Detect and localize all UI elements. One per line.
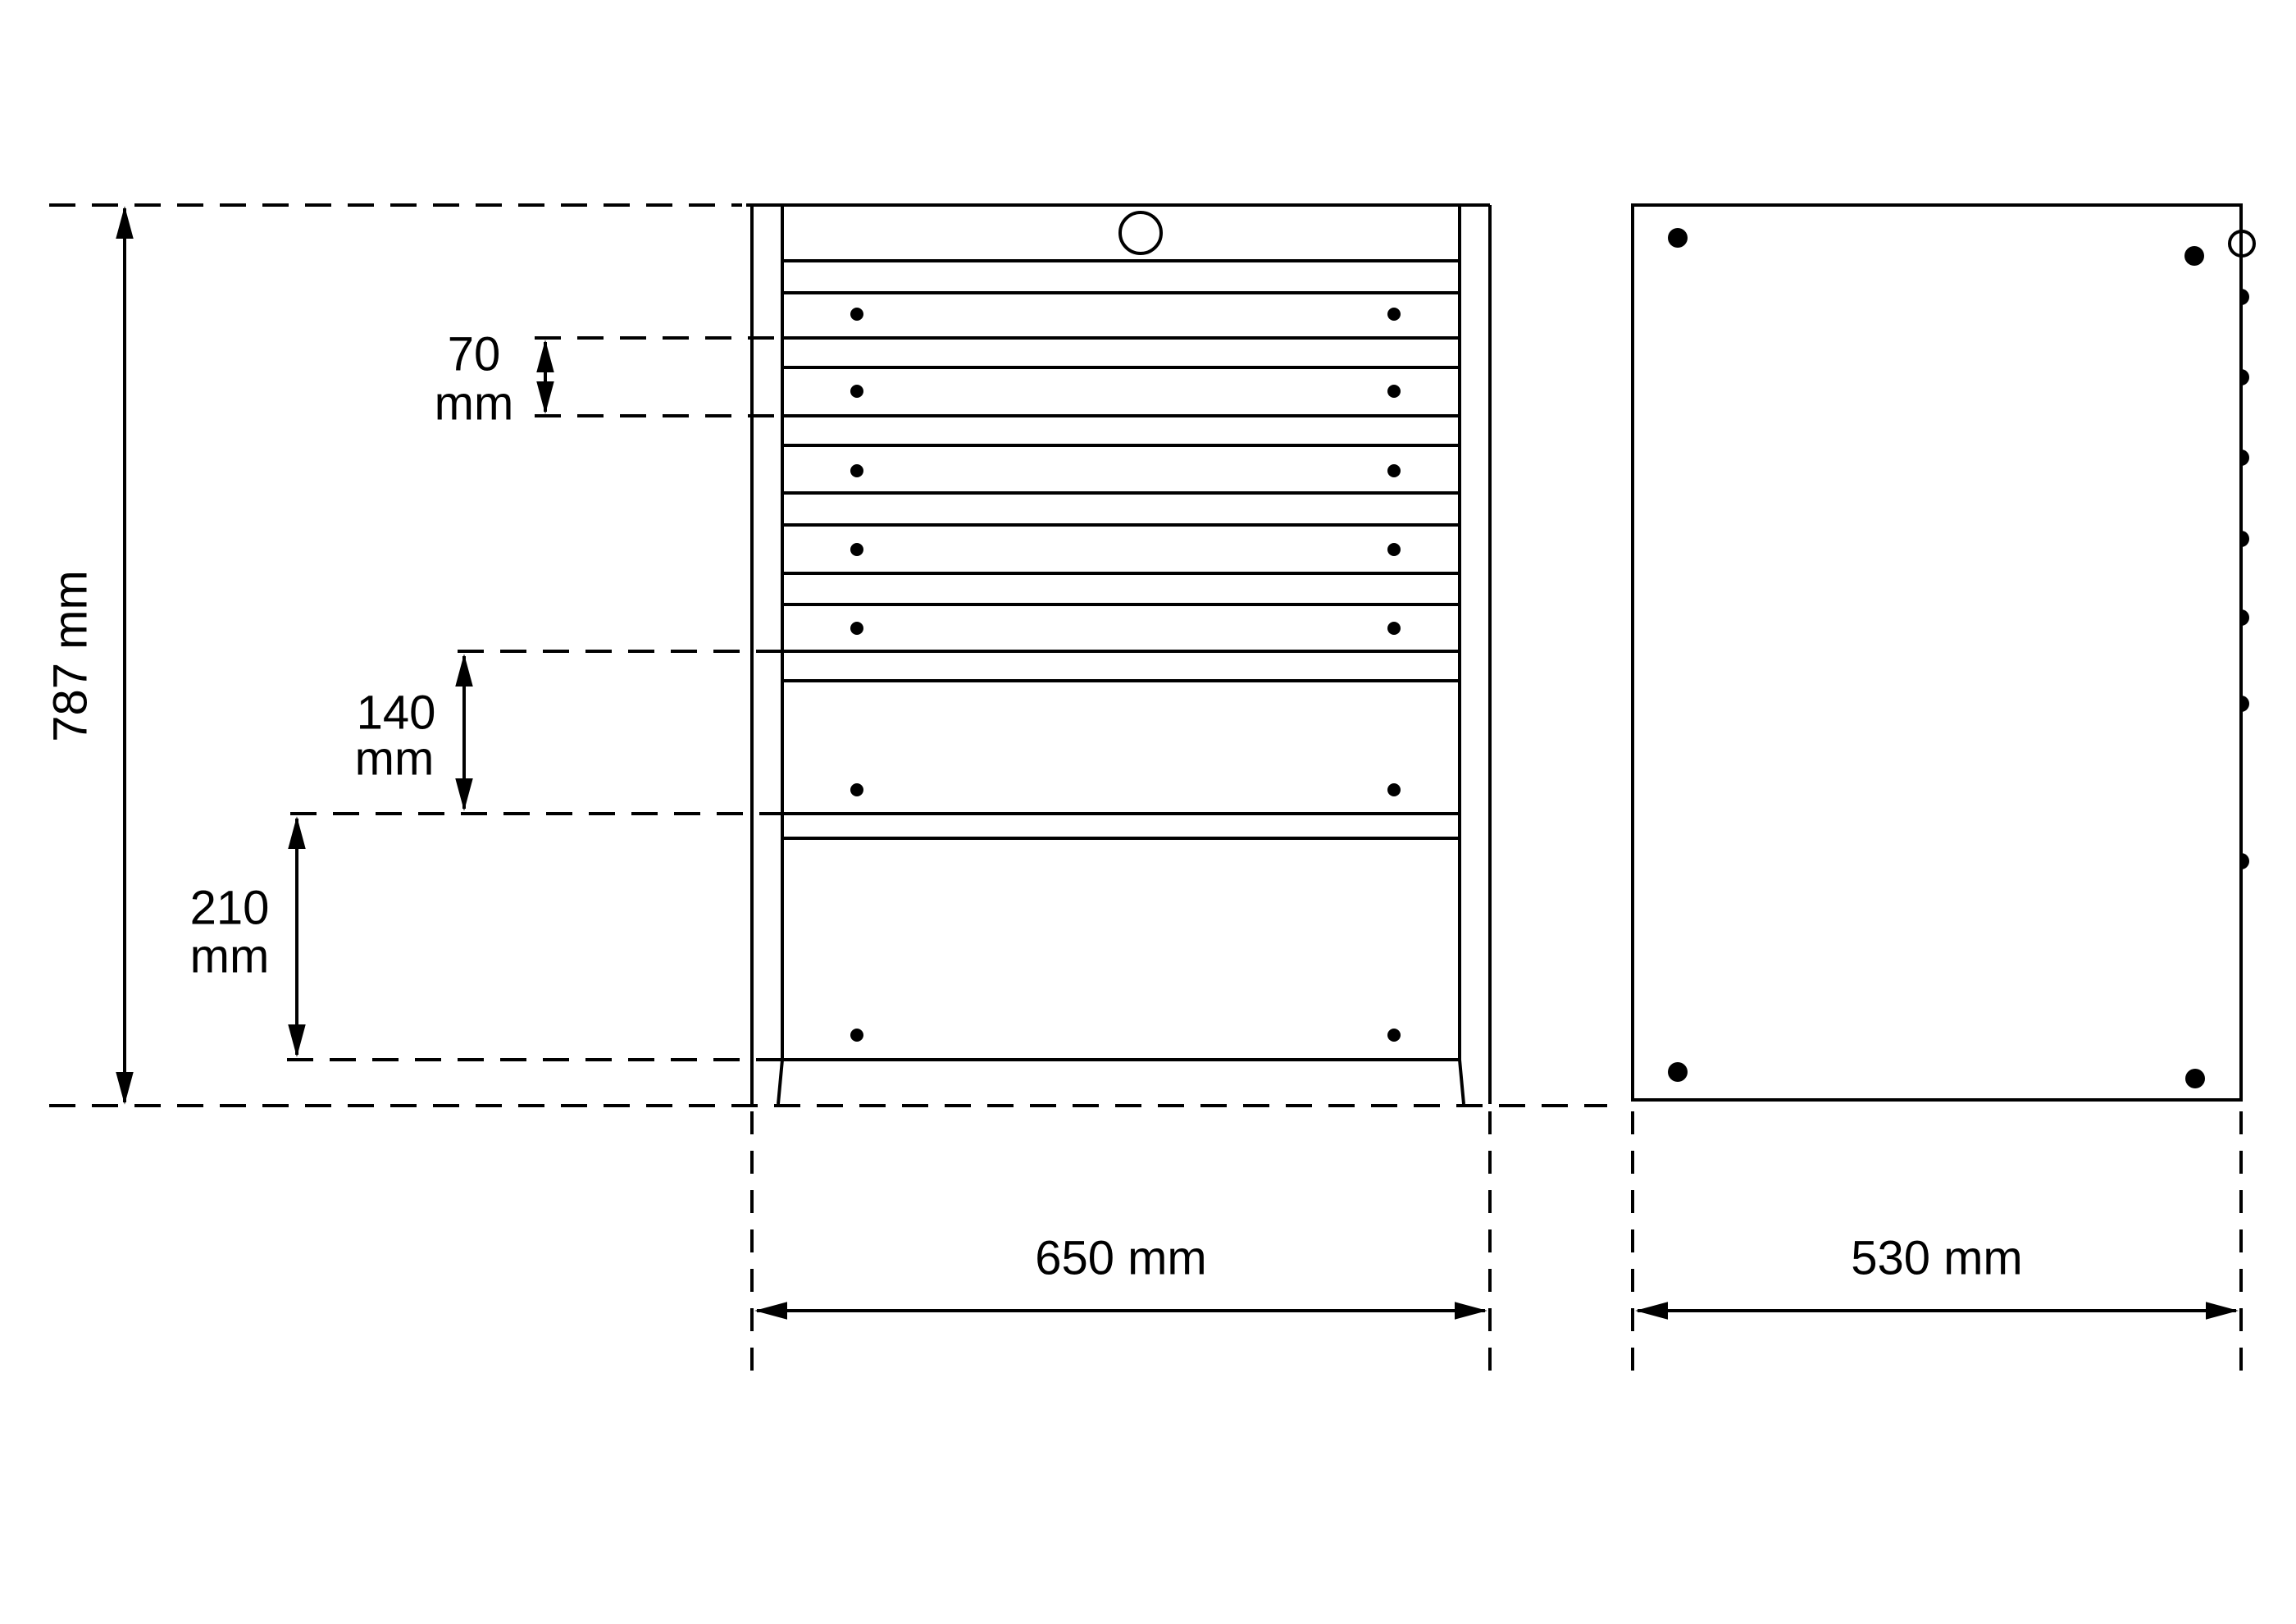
drawing-page: 787 mm 70 mm 140 mm 210 mm 650 mm 530 mm [0, 0, 2296, 1624]
drawer-handle-dot [850, 464, 863, 477]
drawer-handle-dot [850, 622, 863, 635]
pitch-value-label: 70 [448, 328, 501, 381]
drawer-handle-dot [1387, 308, 1401, 321]
drawer-separator-lines [782, 261, 1460, 1060]
pitch-unit-label: mm [435, 377, 514, 431]
medium-unit-label: mm [355, 732, 435, 786]
construction-lines [49, 205, 1607, 1106]
side-view [1633, 205, 2254, 1100]
dim-drawer-pitch: 70 mm [435, 328, 782, 431]
dim-medium-drawer: 140 mm [290, 651, 782, 814]
drawer-latch-bump [2241, 289, 2249, 305]
bolt-dot [1668, 228, 1688, 248]
dim-height: 787 mm [44, 208, 125, 1102]
drawer-handle-dot [850, 783, 863, 796]
drawer-handle-dot [1387, 622, 1401, 635]
drawer-handle-dot [1387, 543, 1401, 556]
drawer-latch-bump [2241, 449, 2249, 466]
drawer-latch-bump [2241, 609, 2249, 626]
drawer-handle-dot [850, 385, 863, 398]
bolt-dot [2185, 1069, 2205, 1088]
side-bolt-dots [1668, 228, 2205, 1088]
front-view [746, 205, 1490, 1104]
drawer-handle-dot [1387, 783, 1401, 796]
dim-depth: 530 mm [1633, 1111, 2241, 1375]
dim-width: 650 mm [752, 1111, 1490, 1375]
cabinet-dimension-drawing: 787 mm 70 mm 140 mm 210 mm 650 mm 530 mm [0, 0, 2296, 1624]
bolt-dot [2184, 246, 2204, 266]
drawer-handle-dot [1387, 464, 1401, 477]
large-unit-label: mm [190, 930, 270, 983]
front-left-rail-inner [778, 205, 782, 1104]
drawer-handle-dots [850, 308, 1401, 1042]
drawer-latch-bump [2241, 531, 2249, 547]
depth-dimension-label: 530 mm [1851, 1232, 2023, 1285]
drawer-handle-dot [850, 543, 863, 556]
dim-large-drawer: 210 mm [190, 819, 782, 1060]
lock-icon [1120, 212, 1161, 253]
drawer-handle-dot [1387, 1029, 1401, 1042]
drawer-handle-dot [850, 308, 863, 321]
drawer-handle-dot [850, 1029, 863, 1042]
front-right-rail-inner [1460, 205, 1464, 1104]
drawer-handle-dot [1387, 385, 1401, 398]
drawer-latch-bump [2241, 369, 2249, 385]
drawer-latch-bump [2241, 853, 2249, 869]
side-panel-outline [1633, 205, 2241, 1100]
height-dimension-label: 787 mm [44, 570, 98, 742]
drawer-latch-bump [2241, 696, 2249, 712]
width-dimension-label: 650 mm [1035, 1232, 1207, 1285]
large-value-label: 210 [190, 882, 270, 935]
bolt-dot [1668, 1062, 1688, 1082]
